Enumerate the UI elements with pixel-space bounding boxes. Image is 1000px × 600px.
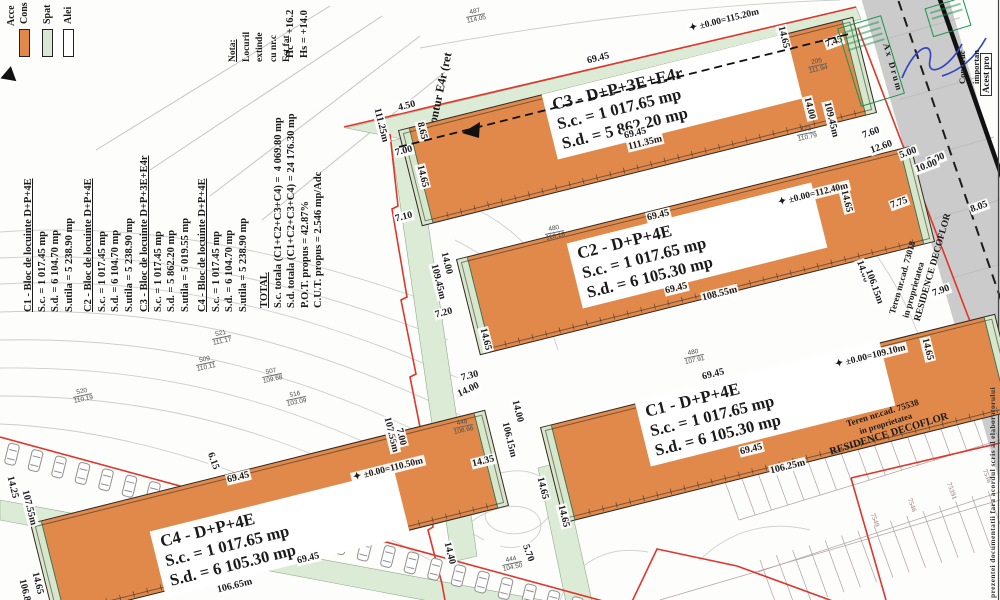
spec-line: S.d. = 6 104.70 mp — [49, 178, 63, 312]
spec-line: S.c. = 1 017.45 mp — [96, 178, 110, 312]
dim-label: 106.15m — [863, 267, 886, 306]
dim-label: 6.15 — [205, 450, 222, 472]
building-heights-note: Hc = +16.2Hs = +14.0 — [284, 10, 311, 58]
spec-block-c4: C4 - Bloc de locuinte D+P+4ES.c. = 1 017… — [196, 178, 250, 312]
total-title: TOTAL — [258, 113, 272, 308]
copyright-disclaimer: prezentei documentatii fara acordul scri… — [988, 387, 997, 598]
spec-line: S.d. = 6 104.70 mp — [223, 178, 237, 312]
survey-point: 507109.68 — [261, 366, 284, 385]
elevation-label-C3: ✦ ±0.00=115.20m — [686, 6, 762, 35]
dim-label: 14.40 — [441, 540, 458, 566]
parcel-number: 75391 — [945, 481, 959, 500]
parcel-number: 7549 — [869, 512, 881, 528]
spec-line: S.utila = 5 238.90 mp — [63, 178, 77, 312]
legend-label-constructii: Cons — [19, 2, 30, 24]
parcel-number: 7546 — [906, 497, 918, 513]
dim-label: 107.55m — [19, 488, 39, 527]
spec-line: S.c. = 1 017.45 mp — [210, 178, 224, 312]
note-line: extinde — [254, 32, 268, 62]
dim-label: 69.45 — [585, 50, 611, 67]
dim-label: 14.00 — [455, 380, 482, 400]
height-line: Hs = +14.0 — [298, 10, 312, 58]
total-block: TOTALS.c. totala (C1+C2+C3+C4) = 4 069.8… — [258, 113, 326, 308]
dim-label: 106.15m — [499, 420, 519, 459]
legend-access-label: Acce — [6, 5, 17, 26]
legend-label-alei: Alei — [63, 7, 74, 24]
note-line: Locuril — [241, 32, 255, 62]
survey-point: 521111.17 — [211, 328, 233, 347]
dim-label: 7.10 — [393, 209, 415, 224]
spec-line: S.c. = 1 017.45 mp — [36, 178, 50, 312]
spec-line: S.utila = 5 238.90 mp — [123, 178, 137, 312]
spec-line: S.utila = 5 019.55 mp — [179, 156, 193, 312]
survey-point: 520110.19 — [72, 386, 94, 405]
legend-swatch-alei — [63, 29, 74, 57]
survey-point: 487114.05 — [465, 6, 487, 25]
dim-label: 7.20 — [433, 305, 455, 320]
height-line: Hc = +16.2 — [284, 10, 298, 58]
spec-title: C4 - Bloc de locuinte D+P+4E — [196, 178, 210, 312]
survey-point: 472110.79 — [796, 124, 818, 143]
site-plan-canvas: Acce Cons Spat Alei Nota:Locurilextindec… — [0, 0, 1000, 600]
legend-swatch-constructii — [19, 29, 30, 57]
dim-label: 5.70 — [520, 542, 537, 564]
legend-label-spatii-verzi: Spat — [42, 5, 53, 24]
dim-label: 111.25m — [371, 106, 391, 144]
total-line: S.d. totala (C1+C2+C3+C4) = 24 176.30 mp — [285, 113, 299, 308]
spec-block-c1: C1 - Bloc de locuinte D+P+4ES.c. = 1 017… — [22, 178, 76, 312]
dim-label: 14.00 — [509, 398, 526, 424]
approval-stamp-2 — [924, 0, 971, 37]
spec-title: C3 - Bloc de locuinte D+P+3E+E4r — [138, 156, 152, 312]
total-line: C.U.T. propus = 2.546 mp/Adc — [312, 113, 326, 308]
total-line: P.O.T. propus = 42.87% — [299, 113, 313, 308]
dim-label: 14.65 — [534, 475, 551, 501]
dim-label: 14.25 — [4, 474, 21, 500]
acest-note: Acest pro — [980, 53, 992, 96]
note-line: cu nr.c — [268, 32, 282, 62]
spec-title: C1 - Bloc de locuinte D+P+4E — [22, 178, 36, 312]
edge-note-line: Construc — [956, 50, 970, 84]
spec-line: S.d. = 6 104.70 mp — [109, 178, 123, 312]
survey-point: 516103.09 — [285, 389, 308, 408]
legend-swatch-spatii-verzi — [42, 29, 53, 57]
spec-block-c3: C3 - Bloc de locuinte D+P+3E+E4rS.c. = 1… — [138, 156, 192, 312]
survey-point: 480107.91 — [683, 347, 706, 366]
dim-label: 8.05 — [968, 198, 990, 215]
dim-label: 10.00 — [913, 157, 940, 176]
access-arrow-icon — [0, 66, 16, 86]
survey-point: 509110.11 — [195, 354, 217, 373]
spec-line: S.c. = 1 017.45 mp — [152, 156, 166, 312]
spec-line: S.d. = 5 862.20 mp — [165, 156, 179, 312]
dim-label: 7.60 — [860, 124, 882, 141]
spec-title: C2 - Bloc de locuinte D+P+4E — [82, 178, 96, 312]
total-line: S.c. totala (C1+C2+C3+C4) = 4 069.80 mp — [272, 113, 286, 308]
spec-block-c2: C2 - Bloc de locuinte D+P+4ES.c. = 1 017… — [82, 178, 136, 312]
dim-label: 4.50 — [396, 98, 418, 113]
spec-line: S.utila = 5 238.90 mp — [237, 178, 251, 312]
edge-note-fragments: Construcimportan — [956, 50, 983, 84]
note-title: Nota: — [227, 32, 241, 62]
survey-point: 444104.50 — [501, 554, 524, 573]
